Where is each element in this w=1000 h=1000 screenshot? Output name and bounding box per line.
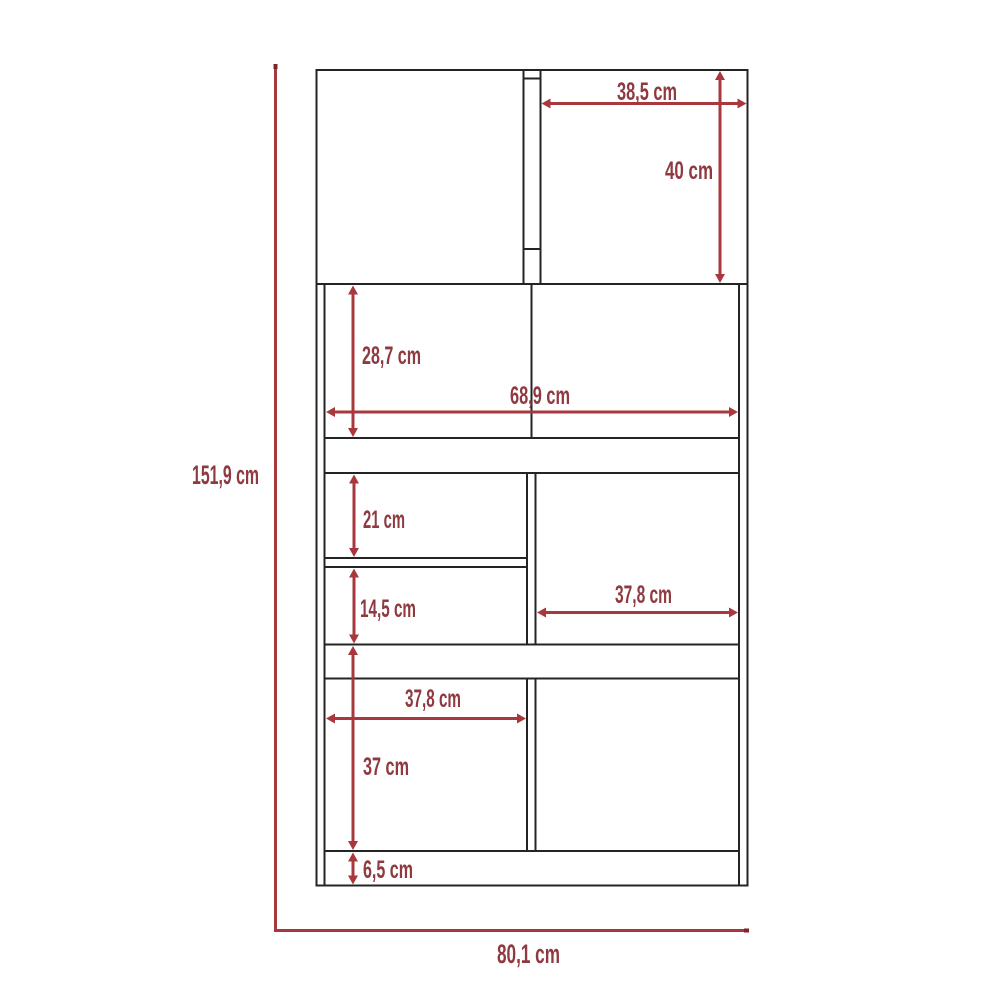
- svg-text:37 cm: 37 cm: [363, 753, 409, 781]
- svg-text:38,5 cm: 38,5 cm: [617, 78, 677, 106]
- svg-text:6,5 cm: 6,5 cm: [363, 856, 413, 884]
- svg-text:80,1 cm: 80,1 cm: [497, 939, 560, 969]
- svg-text:28,7 cm: 28,7 cm: [362, 342, 421, 370]
- svg-text:151,9 cm: 151,9 cm: [192, 460, 259, 490]
- svg-text:14,5 cm: 14,5 cm: [360, 595, 416, 623]
- svg-text:68,9 cm: 68,9 cm: [510, 382, 570, 410]
- svg-text:37,8 cm: 37,8 cm: [405, 685, 461, 713]
- svg-text:37,8 cm: 37,8 cm: [615, 581, 672, 609]
- svg-text:40 cm: 40 cm: [665, 157, 713, 185]
- svg-text:21 cm: 21 cm: [363, 506, 405, 534]
